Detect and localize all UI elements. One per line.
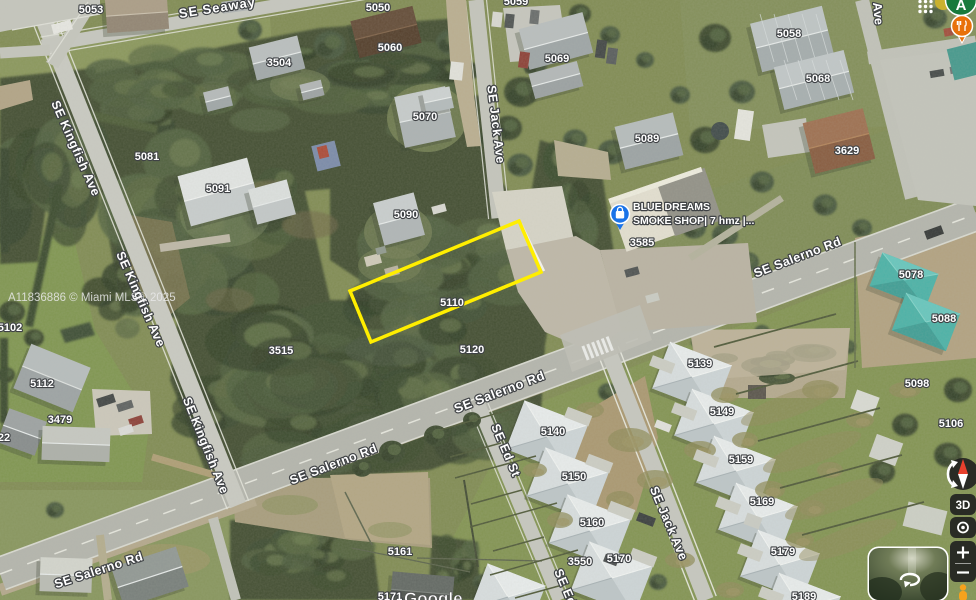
svg-text:5169: 5169: [750, 496, 774, 508]
svg-text:5059: 5059: [504, 0, 528, 8]
svg-text:3D: 3D: [956, 500, 971, 512]
svg-text:5070: 5070: [413, 111, 437, 123]
svg-text:5081: 5081: [135, 151, 159, 163]
svg-text:5078: 5078: [899, 269, 923, 281]
svg-text:5189: 5189: [792, 591, 816, 600]
svg-text:5098: 5098: [905, 378, 929, 390]
svg-text:5110: 5110: [440, 297, 464, 309]
svg-text:A: A: [956, 0, 967, 14]
svg-text:5120: 5120: [460, 344, 484, 356]
svg-text:5171: 5171: [378, 591, 402, 600]
svg-text:5161: 5161: [388, 546, 412, 558]
svg-text:5159: 5159: [729, 454, 753, 466]
svg-text:5089: 5089: [635, 133, 659, 145]
svg-text:5179: 5179: [771, 546, 795, 558]
svg-text:5139: 5139: [688, 358, 712, 370]
svg-text:5170: 5170: [607, 553, 631, 565]
svg-text:5068: 5068: [806, 73, 830, 85]
svg-text:5140: 5140: [541, 426, 565, 438]
svg-text:Google: Google: [404, 589, 463, 600]
svg-text:5053: 5053: [79, 4, 103, 16]
svg-text:5112: 5112: [30, 378, 54, 390]
svg-text:5106: 5106: [939, 418, 963, 430]
svg-text:A11836886 © Miami MLS® 2025: A11836886 © Miami MLS® 2025: [8, 292, 176, 304]
svg-text:5091: 5091: [206, 183, 230, 195]
svg-text:3585: 3585: [630, 237, 654, 249]
svg-text:5149: 5149: [710, 406, 734, 418]
svg-text:5160: 5160: [580, 517, 604, 529]
svg-text:5058: 5058: [777, 28, 801, 40]
svg-text:22: 22: [0, 432, 10, 444]
svg-text:5069: 5069: [545, 53, 569, 65]
svg-text:BLUE DREAMS: BLUE DREAMS: [633, 201, 710, 213]
svg-text:5150: 5150: [562, 471, 586, 483]
svg-text:3629: 3629: [835, 145, 859, 157]
svg-text:3504: 3504: [267, 57, 292, 69]
svg-text:5102: 5102: [0, 322, 22, 334]
svg-text:3550: 3550: [568, 556, 592, 568]
svg-text:5090: 5090: [394, 209, 418, 221]
svg-text:3515: 3515: [269, 345, 293, 357]
svg-text:5050: 5050: [366, 2, 390, 14]
svg-text:5060: 5060: [378, 42, 402, 54]
svg-text:3479: 3479: [48, 414, 72, 426]
svg-text:SMOKE SHOP| 7 hmz |...: SMOKE SHOP| 7 hmz |...: [633, 215, 754, 227]
svg-text:Ave: Ave: [870, 2, 886, 26]
svg-text:5088: 5088: [932, 313, 956, 325]
